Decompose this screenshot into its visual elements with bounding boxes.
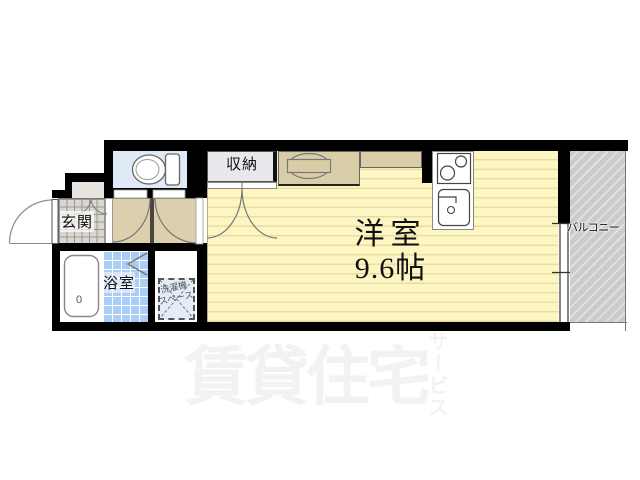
label-closet: 収納 (207, 153, 277, 174)
entrance-door (10, 200, 59, 244)
door-arc-hallway-right (155, 198, 197, 243)
balcony-window (552, 223, 570, 322)
hall-door-opening (153, 190, 185, 198)
washbasin-icon (288, 154, 331, 179)
toilet-icon (133, 154, 180, 185)
toilet-door-opening (114, 190, 147, 198)
label-balcony: バルコニー (567, 219, 619, 235)
tub-drain-label: 0 (76, 294, 82, 306)
label-bathroom: 浴室 (103, 272, 135, 293)
room-door-opening (196, 198, 203, 244)
label-entrance: 玄関 (60, 211, 94, 232)
floorplan-canvas: 賃貸住宅 サービス (0, 0, 640, 480)
stove-icon (438, 154, 471, 184)
label-main-room-size: 9.6帖 (318, 243, 463, 287)
closet-door-arcs (207, 183, 277, 238)
bathtub-icon: 0 (65, 256, 99, 317)
door-arc-hallway-left (113, 198, 150, 242)
